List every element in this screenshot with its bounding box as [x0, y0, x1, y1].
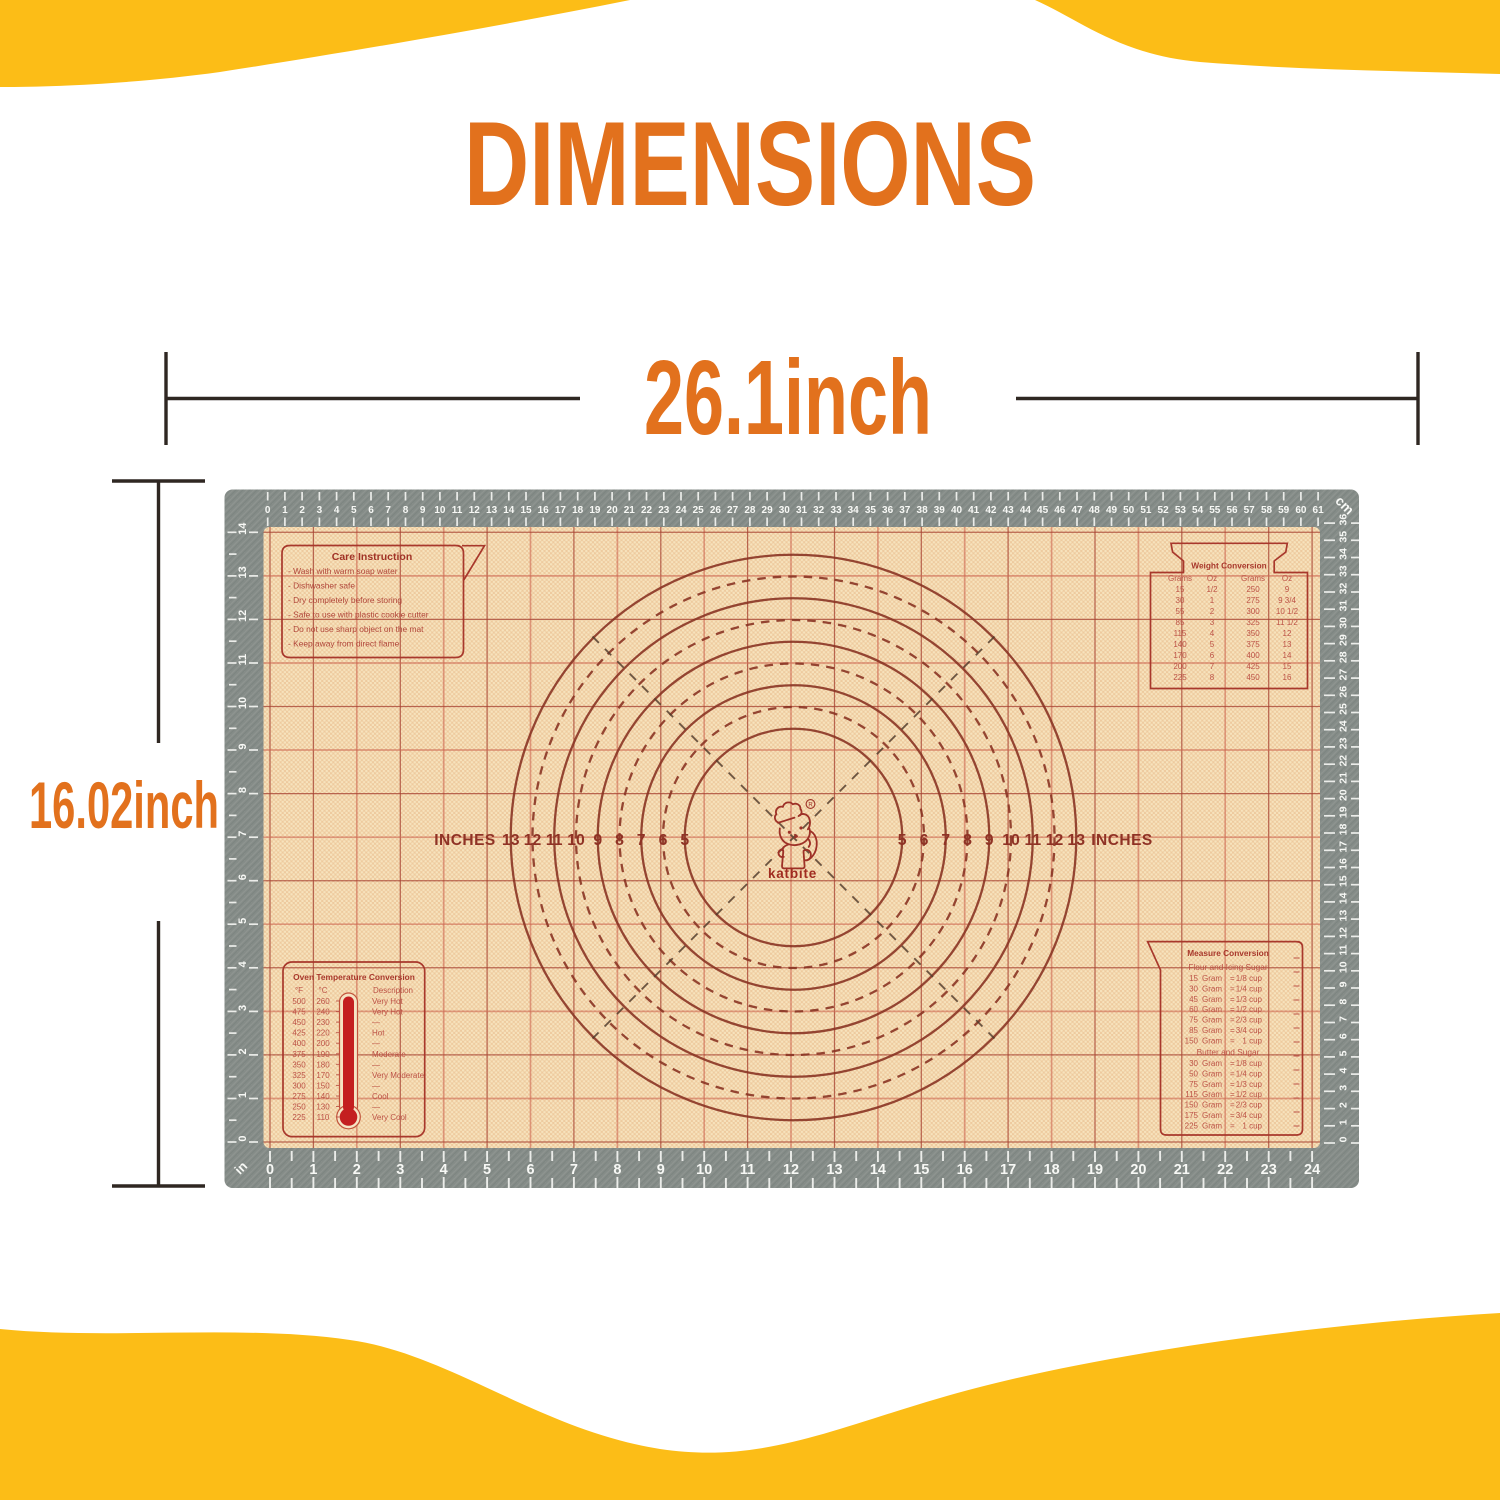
svg-text:2/3 cup: 2/3 cup: [1236, 1101, 1263, 1110]
svg-text:26: 26: [710, 505, 722, 516]
svg-text:250: 250: [292, 1103, 306, 1112]
svg-text:22: 22: [1338, 755, 1350, 767]
svg-text:°F: °F: [295, 986, 303, 995]
svg-text:180: 180: [316, 1060, 330, 1069]
svg-text:14: 14: [870, 1162, 886, 1178]
svg-text:11: 11: [546, 832, 563, 849]
svg-text:110: 110: [317, 1113, 330, 1122]
svg-text:7: 7: [1210, 662, 1215, 671]
svg-text:115: 115: [1174, 629, 1187, 638]
svg-text:9: 9: [985, 832, 994, 849]
svg-text:7: 7: [385, 505, 391, 516]
svg-text:20: 20: [1130, 1162, 1146, 1178]
svg-text:3/4 cup: 3/4 cup: [1236, 1026, 1263, 1035]
svg-text:- Keep away from direct flame: - Keep away from direct flame: [288, 639, 400, 649]
svg-text:1 cup: 1 cup: [1242, 1036, 1262, 1045]
svg-text:Butter and Sugar: Butter and Sugar: [1197, 1047, 1260, 1057]
svg-text:29: 29: [1338, 634, 1350, 646]
svg-text:3: 3: [1338, 1085, 1350, 1091]
svg-text:=: =: [1230, 974, 1235, 983]
svg-text:44: 44: [1020, 505, 1032, 516]
svg-text:38: 38: [917, 505, 929, 516]
svg-text:260: 260: [316, 997, 330, 1006]
svg-text:24: 24: [675, 505, 687, 516]
svg-text:5: 5: [1210, 640, 1215, 649]
svg-text:61: 61: [1313, 505, 1325, 516]
svg-text:250: 250: [1246, 585, 1260, 594]
svg-text:35: 35: [865, 505, 877, 516]
svg-text:2: 2: [299, 505, 305, 516]
svg-text:2: 2: [353, 1162, 361, 1178]
svg-text:Moderate: Moderate: [372, 1050, 406, 1059]
svg-text:140: 140: [316, 1092, 330, 1101]
svg-text:1/8 cup: 1/8 cup: [1236, 1059, 1263, 1068]
svg-text:3/4 cup: 3/4 cup: [1236, 1111, 1263, 1120]
svg-text:21: 21: [1174, 1162, 1190, 1178]
svg-text:24: 24: [1338, 720, 1350, 732]
svg-text:23: 23: [658, 505, 670, 516]
svg-text:275: 275: [292, 1092, 306, 1101]
svg-text:32: 32: [1338, 583, 1350, 595]
svg-text:58: 58: [1261, 505, 1273, 516]
svg-text:20: 20: [607, 505, 619, 516]
svg-text:8: 8: [1210, 673, 1215, 682]
svg-text:375: 375: [1246, 640, 1260, 649]
svg-text:36: 36: [1338, 514, 1350, 526]
svg-text:300: 300: [292, 1081, 306, 1090]
svg-text:33: 33: [830, 505, 842, 516]
svg-text:9: 9: [657, 1162, 665, 1178]
svg-text:Care Instruction: Care Instruction: [332, 551, 413, 563]
svg-text:12: 12: [1283, 629, 1292, 638]
svg-text:6: 6: [1338, 1033, 1350, 1039]
svg-text:2: 2: [1338, 1102, 1350, 1108]
svg-text:12: 12: [1338, 927, 1350, 939]
svg-text:=: =: [1230, 1069, 1235, 1078]
svg-text:400: 400: [292, 1039, 306, 1048]
svg-text:12: 12: [1046, 832, 1064, 849]
svg-text:14: 14: [503, 505, 515, 516]
svg-text:10: 10: [434, 505, 446, 516]
svg-text:Very Hot: Very Hot: [372, 1008, 403, 1017]
svg-text:225: 225: [292, 1113, 306, 1122]
svg-text:45: 45: [1037, 505, 1049, 516]
svg-text:21: 21: [1338, 772, 1350, 784]
svg-text:2/3 cup: 2/3 cup: [1236, 1016, 1263, 1025]
svg-text:- Do not use sharp object on t: - Do not use sharp object on the mat: [288, 624, 424, 634]
svg-text:275: 275: [1246, 596, 1260, 605]
svg-text:INCHES: INCHES: [434, 832, 496, 849]
svg-text:51: 51: [1140, 505, 1152, 516]
svg-text:48: 48: [1089, 505, 1101, 516]
svg-text:75: 75: [1189, 1016, 1198, 1025]
svg-text:13: 13: [486, 505, 498, 516]
svg-text:—: —: [372, 1060, 380, 1069]
svg-text:240: 240: [316, 1008, 330, 1017]
svg-text:32: 32: [813, 505, 825, 516]
svg-text:45: 45: [1189, 995, 1198, 1004]
svg-text:=: =: [1230, 1026, 1235, 1035]
svg-text:31: 31: [1338, 600, 1350, 612]
svg-text:2: 2: [1210, 607, 1215, 616]
svg-text:5: 5: [483, 1162, 491, 1178]
svg-text:7: 7: [570, 1162, 578, 1178]
svg-text:R: R: [808, 803, 813, 809]
svg-text:8: 8: [1338, 999, 1350, 1005]
svg-text:325: 325: [292, 1071, 306, 1080]
svg-text:Gram: Gram: [1202, 1036, 1222, 1045]
svg-text:10 1/2: 10 1/2: [1276, 607, 1299, 616]
svg-text:4: 4: [1210, 629, 1215, 638]
svg-text:425: 425: [292, 1029, 306, 1038]
svg-text:150: 150: [1185, 1036, 1199, 1045]
svg-text:4: 4: [1338, 1068, 1350, 1074]
svg-text:12: 12: [524, 832, 542, 849]
svg-text:115: 115: [1185, 1090, 1198, 1099]
svg-text:11: 11: [1338, 944, 1350, 955]
svg-text:26.1inch: 26.1inch: [644, 339, 932, 457]
svg-text:- Wash with warm soap water: - Wash with warm soap water: [288, 566, 398, 576]
svg-text:Gram: Gram: [1202, 1101, 1222, 1110]
svg-text:49: 49: [1106, 505, 1118, 516]
svg-text:15: 15: [1176, 585, 1185, 594]
svg-text:85: 85: [1189, 1026, 1198, 1035]
svg-text:Gram: Gram: [1202, 1059, 1222, 1068]
svg-text:225: 225: [1185, 1121, 1199, 1130]
svg-text:8: 8: [615, 832, 624, 849]
svg-text:37: 37: [899, 505, 911, 516]
svg-text:56: 56: [1226, 505, 1238, 516]
svg-text:10: 10: [696, 1162, 712, 1178]
svg-text:=: =: [1230, 1080, 1235, 1089]
svg-text:15: 15: [1283, 662, 1292, 671]
svg-text:28: 28: [744, 505, 756, 516]
svg-text:46: 46: [1054, 505, 1066, 516]
svg-text:5: 5: [237, 918, 249, 924]
svg-text:150: 150: [316, 1081, 330, 1090]
svg-text:6: 6: [368, 505, 374, 516]
svg-text:3: 3: [396, 1162, 404, 1178]
svg-text:9: 9: [1285, 585, 1290, 594]
svg-text:11: 11: [237, 654, 249, 666]
svg-text:Oz: Oz: [1282, 574, 1292, 583]
svg-text:60: 60: [1295, 505, 1307, 516]
svg-text:450: 450: [1246, 673, 1260, 682]
svg-text:Gram: Gram: [1202, 1005, 1222, 1014]
svg-text:Oven Temperature Conversion: Oven Temperature Conversion: [293, 972, 415, 982]
svg-text:INCHES: INCHES: [1091, 832, 1153, 849]
svg-text:3: 3: [317, 505, 323, 516]
svg-text:30: 30: [779, 505, 791, 516]
svg-text:14: 14: [237, 522, 249, 535]
svg-text:Very Moderate: Very Moderate: [372, 1071, 425, 1080]
svg-text:5: 5: [1338, 1050, 1350, 1056]
svg-text:25: 25: [1338, 703, 1350, 715]
svg-text:7: 7: [1338, 1016, 1350, 1022]
svg-text:375: 375: [292, 1050, 306, 1059]
svg-text:200: 200: [1173, 662, 1187, 671]
svg-text:19: 19: [589, 505, 601, 516]
svg-text:27: 27: [1338, 669, 1350, 681]
svg-text:9 3/4: 9 3/4: [1278, 596, 1296, 605]
svg-text:9: 9: [593, 832, 602, 849]
svg-text:Weight Conversion: Weight Conversion: [1191, 561, 1266, 571]
svg-text:19: 19: [1338, 806, 1350, 818]
svg-text:350: 350: [292, 1060, 306, 1069]
svg-text:Description: Description: [373, 986, 413, 995]
svg-text:5: 5: [898, 832, 907, 849]
svg-text:220: 220: [316, 1029, 330, 1038]
svg-text:DIMENSIONS: DIMENSIONS: [464, 97, 1036, 231]
svg-text:Gram: Gram: [1202, 974, 1222, 983]
svg-text:50: 50: [1123, 505, 1135, 516]
svg-text:=: =: [1230, 995, 1235, 1004]
svg-text:15: 15: [1189, 974, 1198, 983]
svg-text:=: =: [1230, 1121, 1235, 1130]
svg-text:17: 17: [1000, 1162, 1016, 1178]
svg-text:11: 11: [740, 1162, 755, 1178]
svg-text:1: 1: [1338, 1119, 1350, 1125]
svg-text:1/2 cup: 1/2 cup: [1236, 1005, 1263, 1014]
svg-text:30: 30: [1189, 1059, 1198, 1068]
svg-text:—: —: [372, 1081, 380, 1090]
svg-text:13: 13: [1067, 832, 1085, 849]
svg-text:Very Hot: Very Hot: [372, 997, 403, 1006]
svg-text:5: 5: [680, 832, 689, 849]
svg-text:22: 22: [1217, 1162, 1233, 1178]
svg-text:140: 140: [1173, 640, 1187, 649]
svg-text:0: 0: [237, 1135, 249, 1141]
svg-text:Very Cool: Very Cool: [372, 1113, 407, 1122]
svg-text:14: 14: [1338, 892, 1350, 904]
svg-text:Cool: Cool: [372, 1092, 389, 1101]
svg-text:14: 14: [1283, 651, 1292, 660]
svg-text:1/8 cup: 1/8 cup: [1236, 974, 1263, 983]
svg-text:30: 30: [1189, 984, 1198, 993]
svg-text:8: 8: [963, 832, 972, 849]
svg-text:450: 450: [292, 1018, 306, 1027]
svg-text:=: =: [1230, 984, 1235, 993]
svg-text:0: 0: [1338, 1136, 1350, 1142]
svg-text:15: 15: [1338, 875, 1350, 887]
svg-text:=: =: [1230, 1059, 1235, 1068]
svg-text:Oz: Oz: [1207, 574, 1217, 583]
svg-text:150: 150: [1185, 1101, 1199, 1110]
svg-text:6: 6: [1210, 651, 1215, 660]
svg-text:55: 55: [1176, 607, 1185, 616]
svg-text:9: 9: [237, 743, 249, 749]
svg-text:3: 3: [237, 1005, 249, 1011]
svg-text:16: 16: [1283, 673, 1292, 682]
svg-text:4: 4: [440, 1162, 448, 1178]
svg-text:21: 21: [624, 505, 636, 516]
svg-text:Gram: Gram: [1202, 1080, 1222, 1089]
svg-text:230: 230: [316, 1018, 330, 1027]
svg-text:6: 6: [920, 832, 929, 849]
svg-text:36: 36: [882, 505, 894, 516]
svg-text:40: 40: [951, 505, 963, 516]
svg-text:16: 16: [1338, 858, 1350, 870]
svg-text:8: 8: [237, 787, 249, 793]
svg-text:Gram: Gram: [1202, 1016, 1222, 1025]
svg-text:16.02inch: 16.02inch: [29, 768, 219, 842]
svg-text:=: =: [1230, 1016, 1235, 1025]
svg-text:12: 12: [783, 1162, 799, 1178]
svg-text:9: 9: [420, 505, 426, 516]
svg-text:29: 29: [762, 505, 774, 516]
svg-text:41: 41: [968, 505, 980, 516]
svg-text:1/4 cup: 1/4 cup: [1236, 984, 1263, 993]
svg-text:1/4 cup: 1/4 cup: [1236, 1069, 1263, 1078]
svg-text:55: 55: [1209, 505, 1221, 516]
svg-text:=: =: [1230, 1036, 1235, 1045]
svg-text:2: 2: [237, 1048, 249, 1054]
svg-text:170: 170: [1173, 651, 1187, 660]
svg-text:18: 18: [572, 505, 584, 516]
svg-text:12: 12: [469, 505, 481, 516]
svg-text:katbite: katbite: [768, 866, 817, 881]
svg-text:Gram: Gram: [1202, 1069, 1222, 1078]
svg-text:11: 11: [1024, 832, 1041, 849]
svg-text:325: 325: [1246, 618, 1260, 627]
svg-text:Gram: Gram: [1202, 1026, 1222, 1035]
svg-text:=: =: [1230, 1090, 1235, 1099]
svg-text:60: 60: [1189, 1005, 1198, 1014]
svg-text:11 1/2: 11 1/2: [1276, 618, 1298, 627]
svg-text:6: 6: [237, 874, 249, 880]
svg-text:300: 300: [1246, 607, 1260, 616]
svg-text:4: 4: [237, 960, 249, 967]
svg-text:—: —: [372, 1103, 380, 1112]
svg-text:1/2 cup: 1/2 cup: [1236, 1090, 1263, 1099]
svg-text:10: 10: [237, 697, 249, 709]
svg-text:1/2: 1/2: [1206, 585, 1218, 594]
svg-text:16: 16: [957, 1162, 973, 1178]
svg-text:Gram: Gram: [1202, 1121, 1222, 1130]
svg-text:9: 9: [1338, 981, 1350, 987]
svg-text:54: 54: [1192, 505, 1204, 516]
svg-text:130: 130: [316, 1103, 330, 1112]
svg-text:25: 25: [693, 505, 705, 516]
svg-text:0: 0: [266, 1162, 274, 1178]
svg-text:59: 59: [1278, 505, 1290, 516]
svg-text:—: —: [372, 1039, 380, 1048]
svg-text:Grams: Grams: [1241, 574, 1265, 583]
svg-text:350: 350: [1246, 629, 1260, 638]
svg-text:425: 425: [1246, 662, 1260, 671]
svg-text:475: 475: [292, 1008, 306, 1017]
svg-text:- Dry completely before storin: - Dry completely before storing: [288, 595, 402, 605]
svg-text:1/3 cup: 1/3 cup: [1236, 1080, 1263, 1089]
svg-text:Gram: Gram: [1202, 1111, 1222, 1120]
svg-text:47: 47: [1071, 505, 1083, 516]
svg-text:1/3 cup: 1/3 cup: [1236, 995, 1263, 1004]
svg-text:1: 1: [237, 1092, 249, 1098]
svg-text:400: 400: [1246, 651, 1260, 660]
svg-text:23: 23: [1338, 737, 1350, 749]
svg-text:=: =: [1230, 1005, 1235, 1014]
svg-text:34: 34: [848, 505, 860, 516]
svg-text:30: 30: [1176, 596, 1185, 605]
svg-text:6: 6: [526, 1162, 534, 1178]
svg-text:8: 8: [613, 1162, 621, 1178]
svg-text:85: 85: [1176, 618, 1185, 627]
svg-text:6: 6: [659, 832, 668, 849]
svg-text:3: 3: [1210, 618, 1215, 627]
svg-text:7: 7: [941, 832, 950, 849]
svg-text:26: 26: [1338, 686, 1350, 698]
svg-text:4: 4: [334, 505, 340, 516]
svg-text:13: 13: [1338, 910, 1350, 922]
svg-text:1: 1: [282, 505, 288, 516]
svg-text:33: 33: [1338, 565, 1350, 577]
svg-text:57: 57: [1244, 505, 1256, 516]
svg-text:—: —: [372, 1018, 380, 1027]
svg-text:=: =: [1230, 1101, 1235, 1110]
svg-text:175: 175: [1185, 1111, 1199, 1120]
svg-text:34: 34: [1338, 548, 1350, 560]
svg-text:- Safe to use with plastic coo: - Safe to use with plastic cookie cutter: [288, 610, 429, 620]
svg-text:Gram: Gram: [1202, 1090, 1222, 1099]
svg-text:5: 5: [351, 505, 357, 516]
svg-text:39: 39: [934, 505, 946, 516]
svg-text:13: 13: [1283, 640, 1292, 649]
svg-text:170: 170: [316, 1071, 330, 1080]
svg-text:53: 53: [1175, 505, 1187, 516]
svg-text:17: 17: [555, 505, 567, 516]
svg-text:15: 15: [913, 1162, 929, 1178]
svg-text:52: 52: [1158, 505, 1170, 516]
svg-text:24: 24: [1304, 1162, 1320, 1178]
svg-text:500: 500: [292, 997, 306, 1006]
svg-text:43: 43: [1003, 505, 1015, 516]
svg-text:10: 10: [1338, 961, 1350, 973]
svg-text:12: 12: [237, 610, 249, 622]
svg-text:18: 18: [1338, 824, 1350, 836]
svg-text:°C: °C: [319, 986, 328, 995]
svg-text:1: 1: [1210, 596, 1215, 605]
svg-text:7: 7: [237, 831, 249, 837]
svg-text:Flour and Icing Sugar: Flour and Icing Sugar: [1188, 962, 1268, 972]
svg-text:Grams: Grams: [1168, 574, 1192, 583]
svg-text:23: 23: [1261, 1162, 1277, 1178]
svg-text:13: 13: [826, 1162, 842, 1178]
svg-text:30: 30: [1338, 617, 1350, 629]
svg-text:200: 200: [316, 1039, 330, 1048]
svg-text:11: 11: [452, 505, 463, 516]
svg-text:=: =: [1230, 1111, 1235, 1120]
svg-text:225: 225: [1173, 673, 1187, 682]
svg-text:15: 15: [520, 505, 532, 516]
svg-text:13: 13: [237, 566, 249, 578]
svg-text:17: 17: [1338, 841, 1350, 853]
svg-text:20: 20: [1338, 789, 1350, 801]
svg-text:8: 8: [403, 505, 409, 516]
svg-text:27: 27: [727, 505, 739, 516]
svg-text:10: 10: [567, 832, 585, 849]
svg-text:50: 50: [1189, 1069, 1198, 1078]
svg-text:35: 35: [1338, 531, 1350, 543]
svg-text:0: 0: [265, 505, 271, 516]
svg-text:75: 75: [1189, 1080, 1198, 1089]
svg-text:190: 190: [316, 1050, 330, 1059]
svg-text:19: 19: [1087, 1162, 1103, 1178]
svg-text:42: 42: [985, 505, 997, 516]
svg-text:28: 28: [1338, 651, 1350, 663]
svg-text:13: 13: [502, 832, 520, 849]
svg-text:1 cup: 1 cup: [1242, 1121, 1262, 1130]
svg-text:16: 16: [538, 505, 550, 516]
